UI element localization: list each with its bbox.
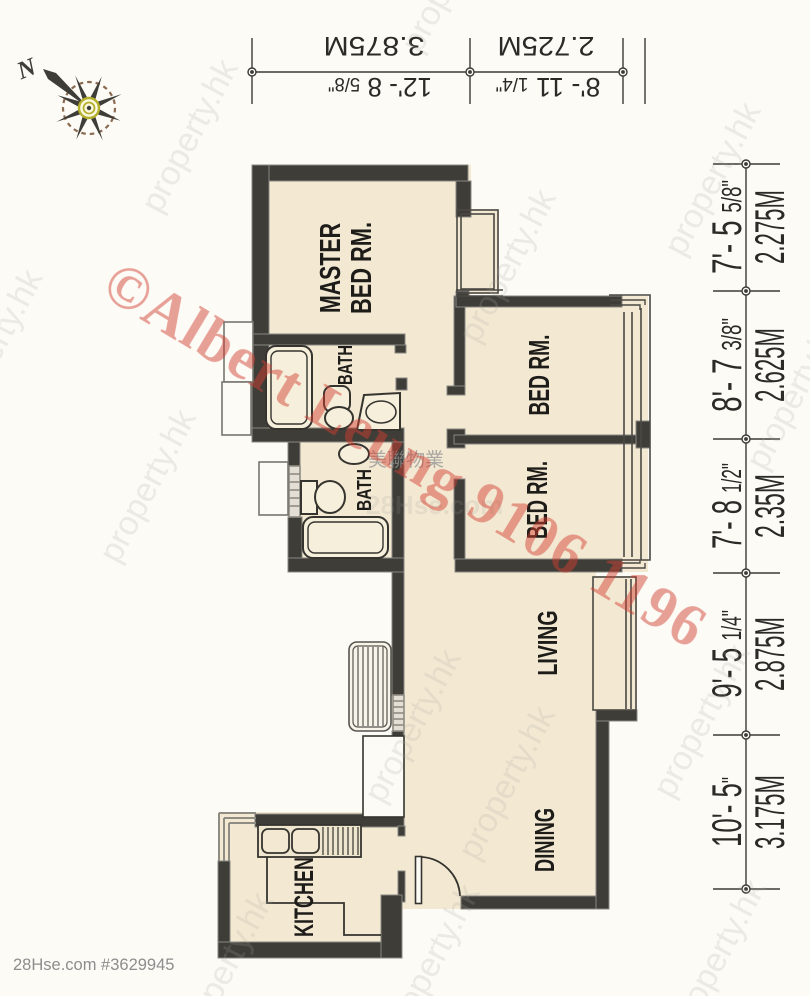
svg-text:MASTER: MASTER [315,223,347,313]
svg-text:2.275M: 2.275M [746,190,793,264]
svg-text:10'- 5": 10'- 5" [703,777,750,847]
svg-text:LIVING: LIVING [532,611,563,676]
svg-text:DINING: DINING [529,808,560,872]
svg-text:28Hse.com #3629945: 28Hse.com #3629945 [13,956,174,974]
svg-text:BED RM.: BED RM. [524,335,556,416]
svg-text:2.35M: 2.35M [746,474,793,538]
svg-text:KITCHEN: KITCHEN [289,857,319,937]
svg-text:3.175M: 3.175M [746,775,793,849]
svg-text:BED RM.: BED RM. [346,222,378,314]
svg-text:2.725M: 2.725M [498,31,595,61]
